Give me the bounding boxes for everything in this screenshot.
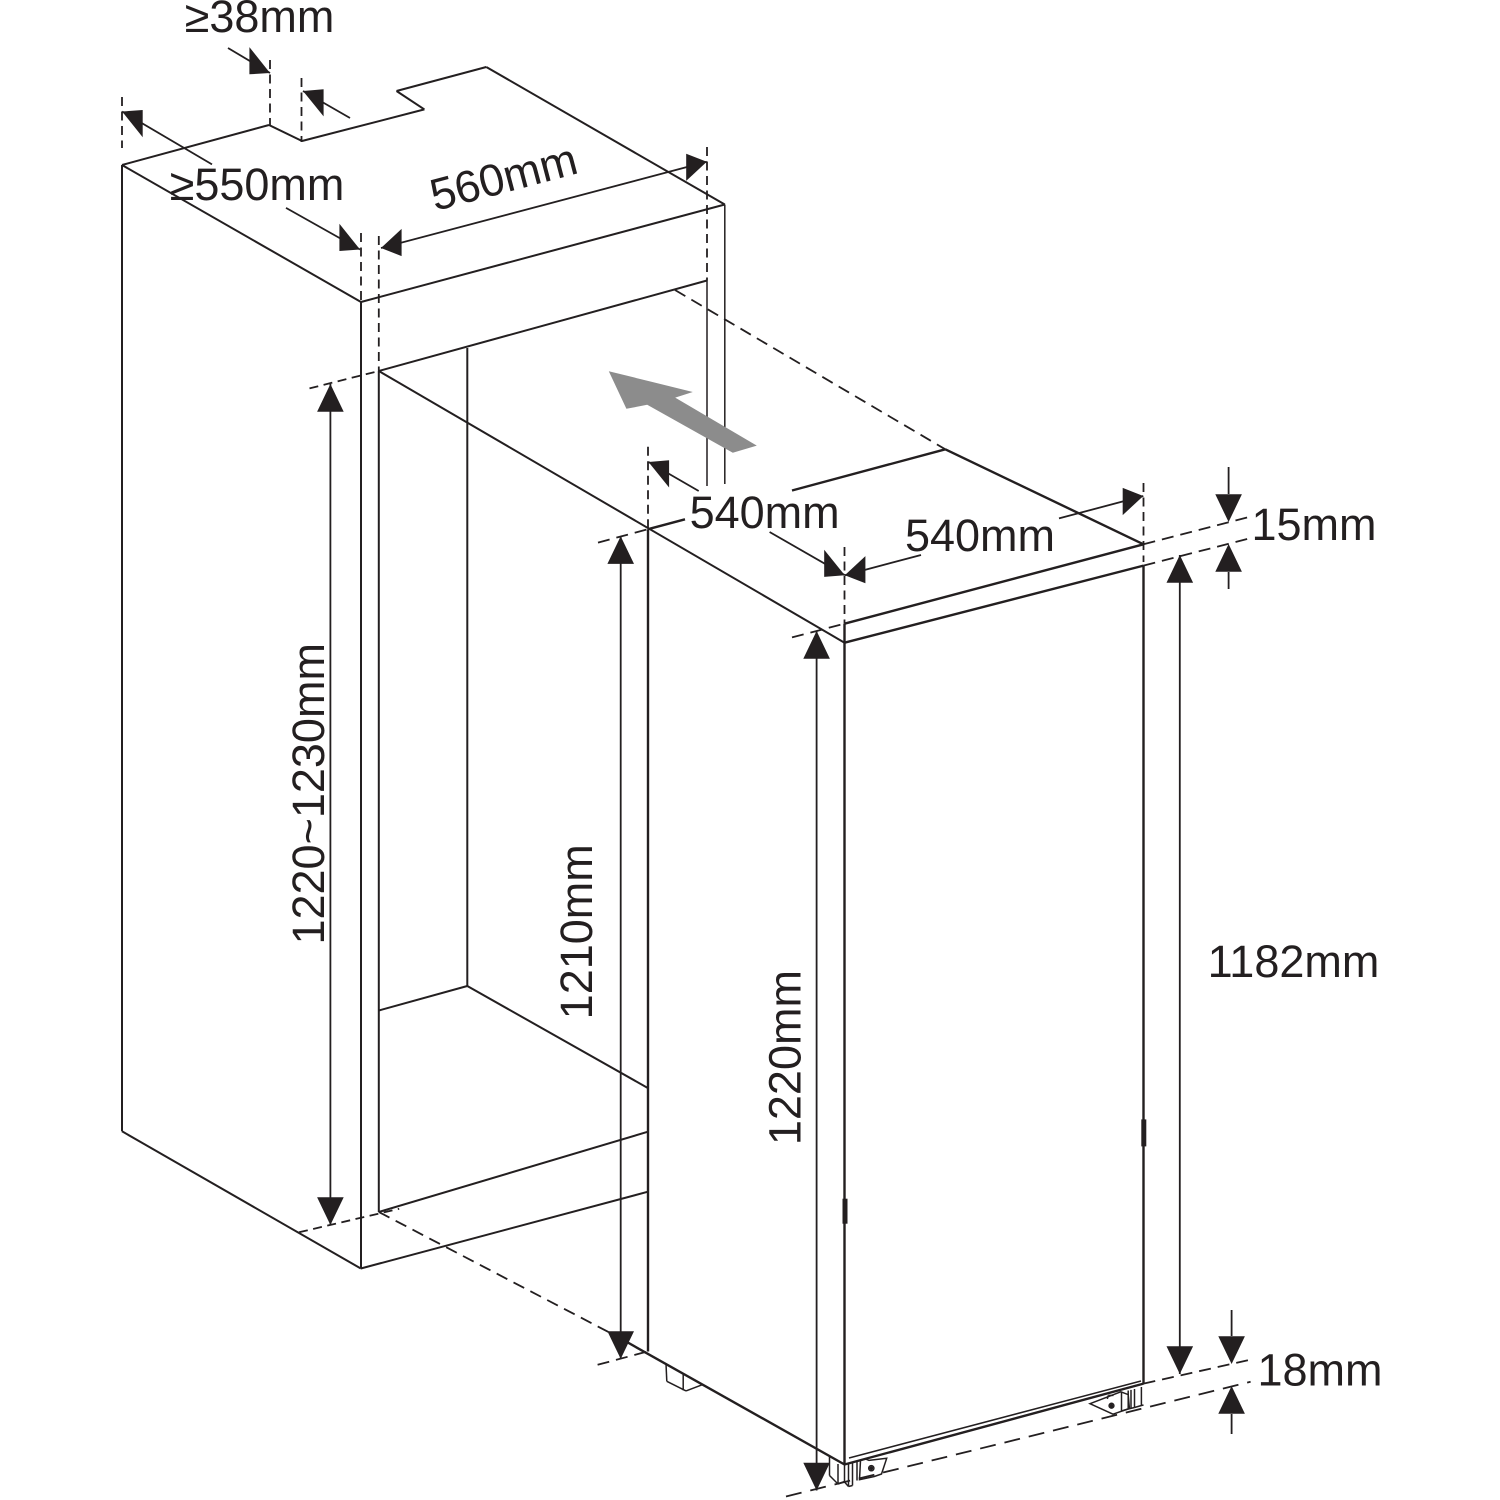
svg-text:1210mm: 1210mm	[551, 844, 602, 1019]
svg-text:540mm: 540mm	[905, 510, 1055, 561]
svg-text:1182mm: 1182mm	[1208, 936, 1380, 987]
svg-text:1220mm: 1220mm	[760, 970, 811, 1145]
svg-text:15mm: 15mm	[1251, 499, 1376, 550]
svg-text:18mm: 18mm	[1257, 1345, 1382, 1396]
svg-text:1220~1230mm: 1220~1230mm	[283, 643, 334, 944]
svg-text:≥550mm: ≥550mm	[170, 159, 345, 210]
svg-text:540mm: 540mm	[690, 487, 840, 538]
svg-text:≥38mm: ≥38mm	[185, 0, 335, 42]
